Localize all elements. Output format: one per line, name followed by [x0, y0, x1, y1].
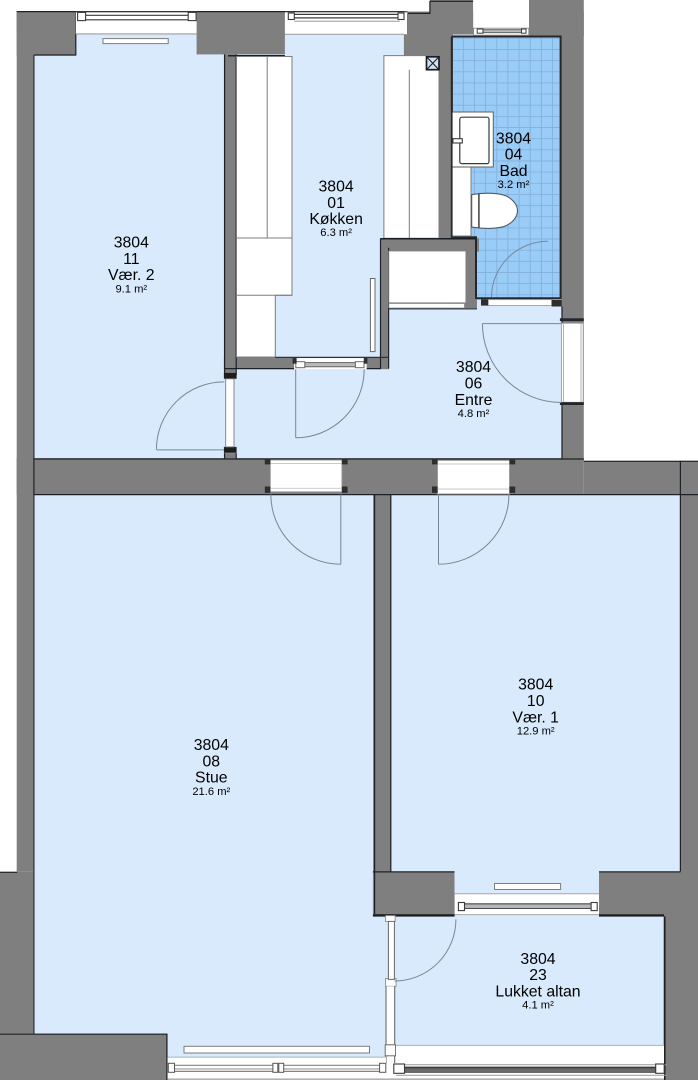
svg-text:Bad: Bad [499, 163, 527, 180]
svg-text:3804: 3804 [456, 359, 491, 376]
svg-text:10: 10 [527, 693, 545, 710]
svg-text:3804: 3804 [518, 677, 553, 694]
svg-text:21.6 m²: 21.6 m² [192, 786, 230, 798]
svg-text:3804: 3804 [496, 130, 531, 147]
svg-text:3804: 3804 [319, 179, 354, 196]
svg-text:08: 08 [203, 753, 221, 770]
svg-text:04: 04 [505, 147, 523, 164]
svg-text:Stue: Stue [195, 770, 228, 787]
svg-text:4.1 m²: 4.1 m² [522, 1000, 554, 1012]
svg-text:Vær. 1: Vær. 1 [512, 709, 559, 726]
svg-text:3.2 m²: 3.2 m² [498, 179, 530, 191]
svg-text:06: 06 [465, 376, 483, 393]
svg-text:23: 23 [529, 967, 547, 984]
svg-text:12.9 m²: 12.9 m² [517, 726, 555, 738]
svg-text:Vær. 2: Vær. 2 [108, 267, 155, 284]
svg-text:Lukket altan: Lukket altan [495, 983, 580, 1000]
svg-text:6.3 m²: 6.3 m² [320, 227, 352, 239]
svg-text:3804: 3804 [194, 737, 229, 754]
svg-text:Entre: Entre [455, 392, 493, 409]
svg-text:9.1 m²: 9.1 m² [115, 283, 147, 295]
svg-text:3804: 3804 [520, 951, 555, 968]
svg-text:3804: 3804 [114, 235, 149, 252]
svg-text:Køkken: Køkken [309, 211, 363, 228]
svg-text:4.8 m²: 4.8 m² [458, 408, 490, 420]
svg-text:01: 01 [327, 195, 345, 212]
svg-text:11: 11 [123, 251, 140, 268]
